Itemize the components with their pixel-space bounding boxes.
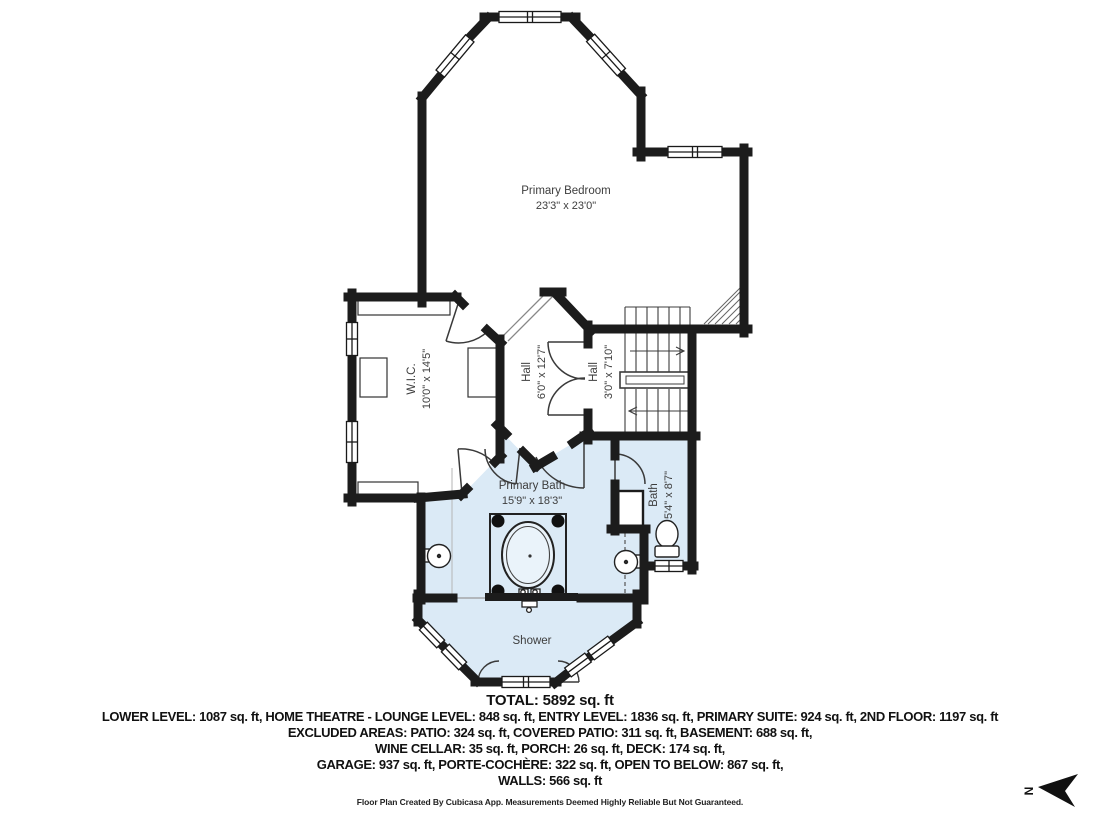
disclaimer-note: Floor Plan Created By Cubicasa App. Meas… (0, 797, 1100, 807)
wic-closet-left (360, 358, 387, 397)
stair-rail (620, 372, 690, 388)
wic-dresser (468, 348, 497, 397)
summary-line-walls: WALLS: 566 sq. ft (0, 773, 1100, 789)
hall-double-door-top (548, 342, 585, 379)
hall-2-dims: 3'0" x 7'10" (603, 345, 615, 399)
closet-rod-dashes (360, 307, 450, 490)
wic-name: W.I.C. (406, 363, 418, 394)
bath-name: Bath (648, 483, 660, 507)
window (587, 34, 626, 76)
wic-upper-door (446, 301, 488, 343)
room-label-shower: Shower (513, 635, 552, 647)
primary-bedroom-dims: 23'3" x 23'0" (536, 200, 596, 212)
summary-line-garage: GARAGE: 937 sq. ft, PORTE-COCHÈRE: 322 s… (0, 757, 1100, 773)
bath-cabinet (616, 491, 643, 527)
primary-bath-name: Primary Bath (499, 480, 565, 492)
stair-down-arrow (629, 404, 694, 415)
hall-1-name: Hall (521, 362, 533, 382)
window (347, 323, 358, 356)
total-area-label: TOTAL: 5892 sq. ft (0, 692, 1100, 709)
window (668, 147, 722, 158)
primary-bedroom-name: Primary Bedroom (521, 185, 610, 197)
bathtub-drain (528, 554, 531, 557)
summary-line-levels: LOWER LEVEL: 1087 sq. ft, HOME THEATRE -… (0, 709, 1100, 725)
stair-up-arrow (630, 347, 684, 355)
summary-line-cellar: WINE CELLAR: 35 sq. ft, PORCH: 26 sq. ft… (0, 741, 1100, 757)
area-summary: TOTAL: 5892 sq. ft LOWER LEVEL: 1087 sq.… (0, 692, 1100, 789)
toilet (655, 521, 679, 558)
window (347, 422, 358, 463)
summary-line-excluded: EXCLUDED AREAS: PATIO: 324 sq. ft, COVER… (0, 725, 1100, 741)
room-label-hall-2: Hall 3'0" x 7'10" (588, 345, 615, 399)
room-label-hall-1: Hall 6'0" x 12'7" (521, 345, 548, 399)
hall-double-door-bottom (548, 378, 585, 415)
window (499, 12, 561, 23)
wic-dims: 10'0" x 14'5" (421, 349, 433, 409)
window (655, 561, 683, 572)
window (502, 677, 550, 688)
primary-bath-dims: 15'9" x 18'3" (502, 495, 562, 507)
opening-bedroom-hall (503, 291, 553, 341)
hall-1-dims: 6'0" x 12'7" (536, 345, 548, 399)
room-label-primary-bedroom: Primary Bedroom 23'3" x 23'0" (521, 185, 610, 212)
hall-2-name: Hall (588, 362, 600, 382)
window (436, 35, 474, 77)
room-label-wic: W.I.C. 10'0" x 14'5" (406, 349, 433, 409)
hatch-area (704, 284, 744, 324)
bathtub (502, 522, 554, 588)
bath-dims: 5'4" x 8'7" (663, 471, 675, 519)
